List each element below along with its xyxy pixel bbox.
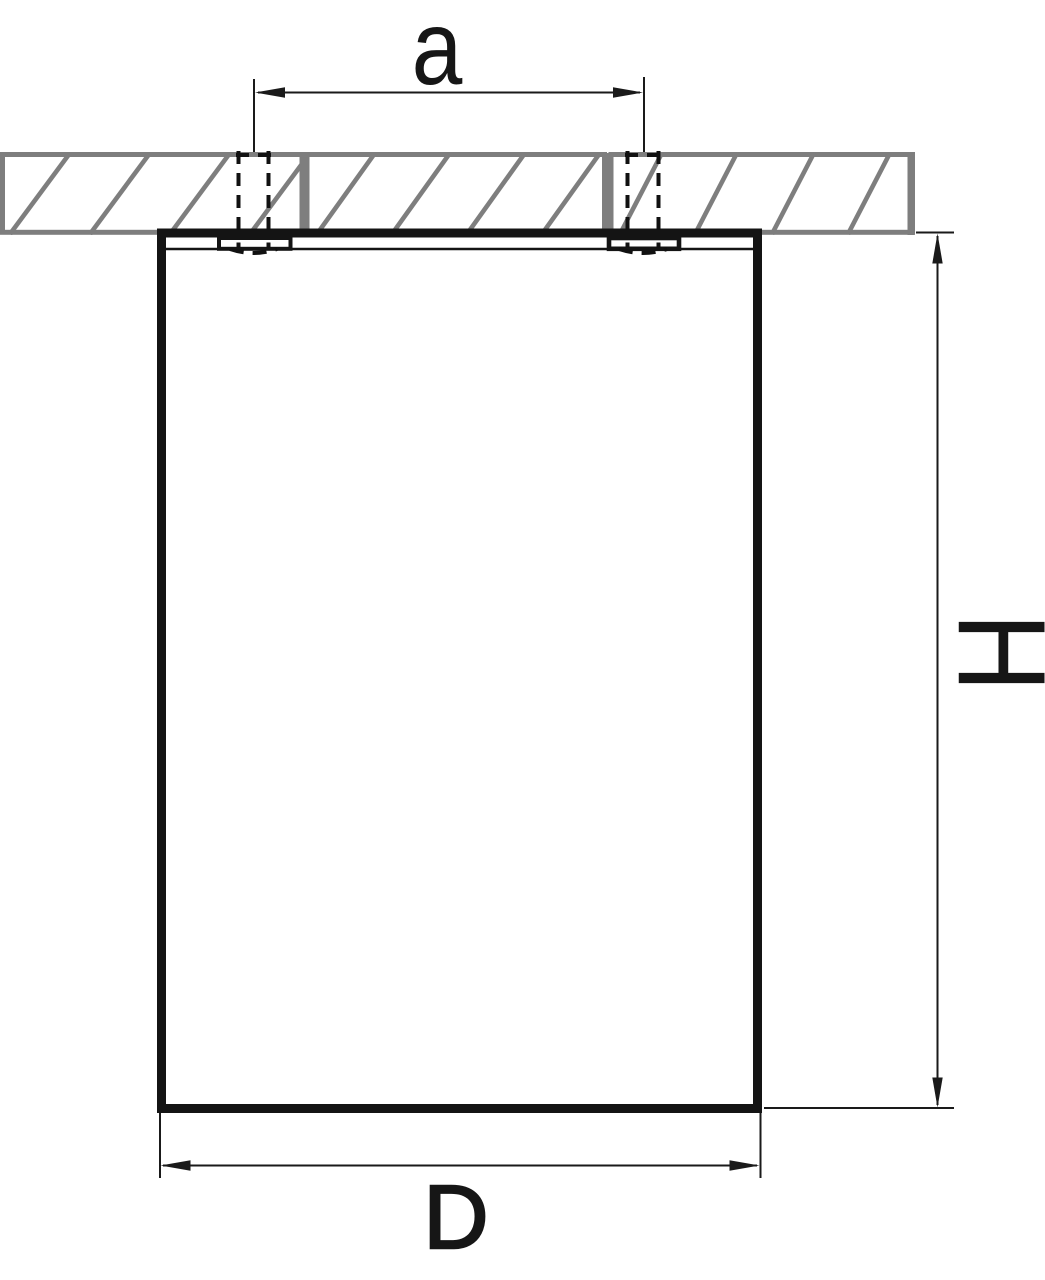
svg-text:a: a xyxy=(412,0,463,107)
svg-text:D: D xyxy=(424,1168,489,1268)
svg-text:H: H xyxy=(933,613,1045,692)
